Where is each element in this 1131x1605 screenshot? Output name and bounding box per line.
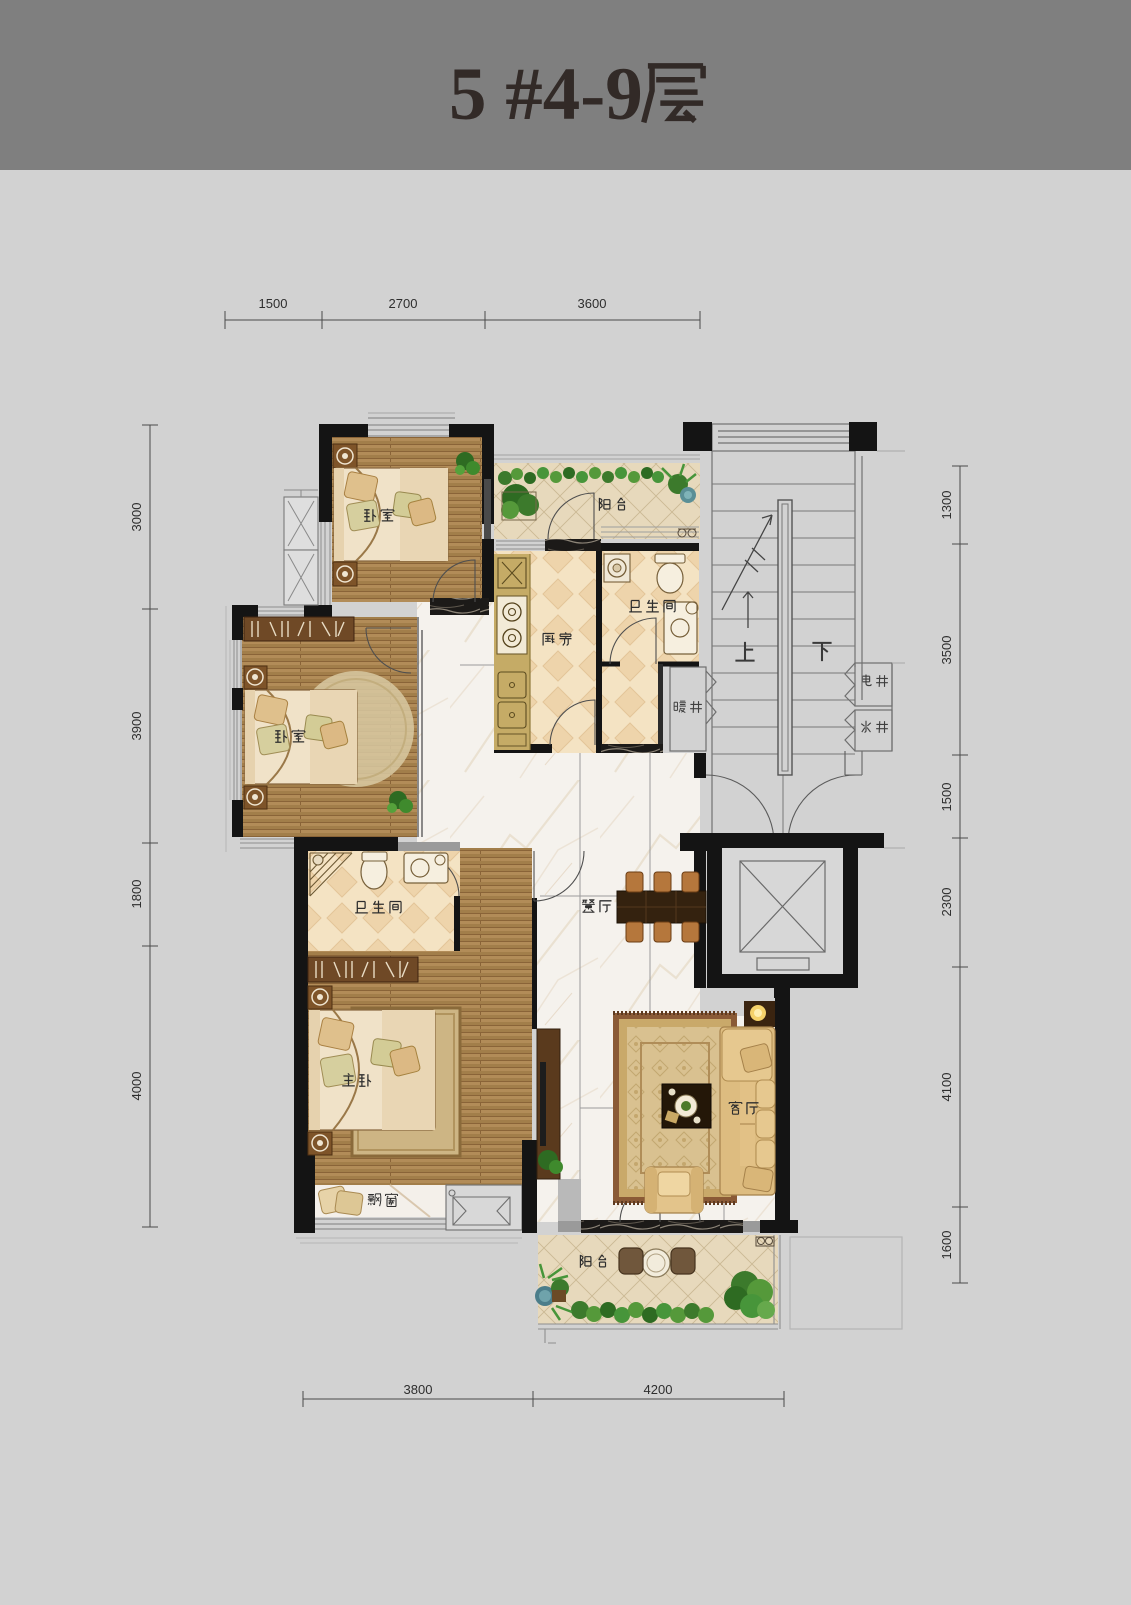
svg-text:2300: 2300 xyxy=(939,888,954,917)
svg-text:1800: 1800 xyxy=(129,880,144,909)
svg-text:1500: 1500 xyxy=(939,783,954,812)
svg-text:1500: 1500 xyxy=(259,296,288,311)
svg-text:1300: 1300 xyxy=(939,491,954,520)
svg-text:3800: 3800 xyxy=(404,1382,433,1397)
svg-text:3900: 3900 xyxy=(129,712,144,741)
svg-text:4200: 4200 xyxy=(644,1382,673,1397)
svg-text:4100: 4100 xyxy=(939,1073,954,1102)
svg-text:1600: 1600 xyxy=(939,1231,954,1260)
svg-text:4000: 4000 xyxy=(129,1072,144,1101)
svg-text:3000: 3000 xyxy=(129,503,144,532)
svg-text:3500: 3500 xyxy=(939,636,954,665)
svg-text:2700: 2700 xyxy=(389,296,418,311)
svg-text:5 #4-9: 5 #4-9 xyxy=(449,53,643,136)
svg-text:3600: 3600 xyxy=(578,296,607,311)
